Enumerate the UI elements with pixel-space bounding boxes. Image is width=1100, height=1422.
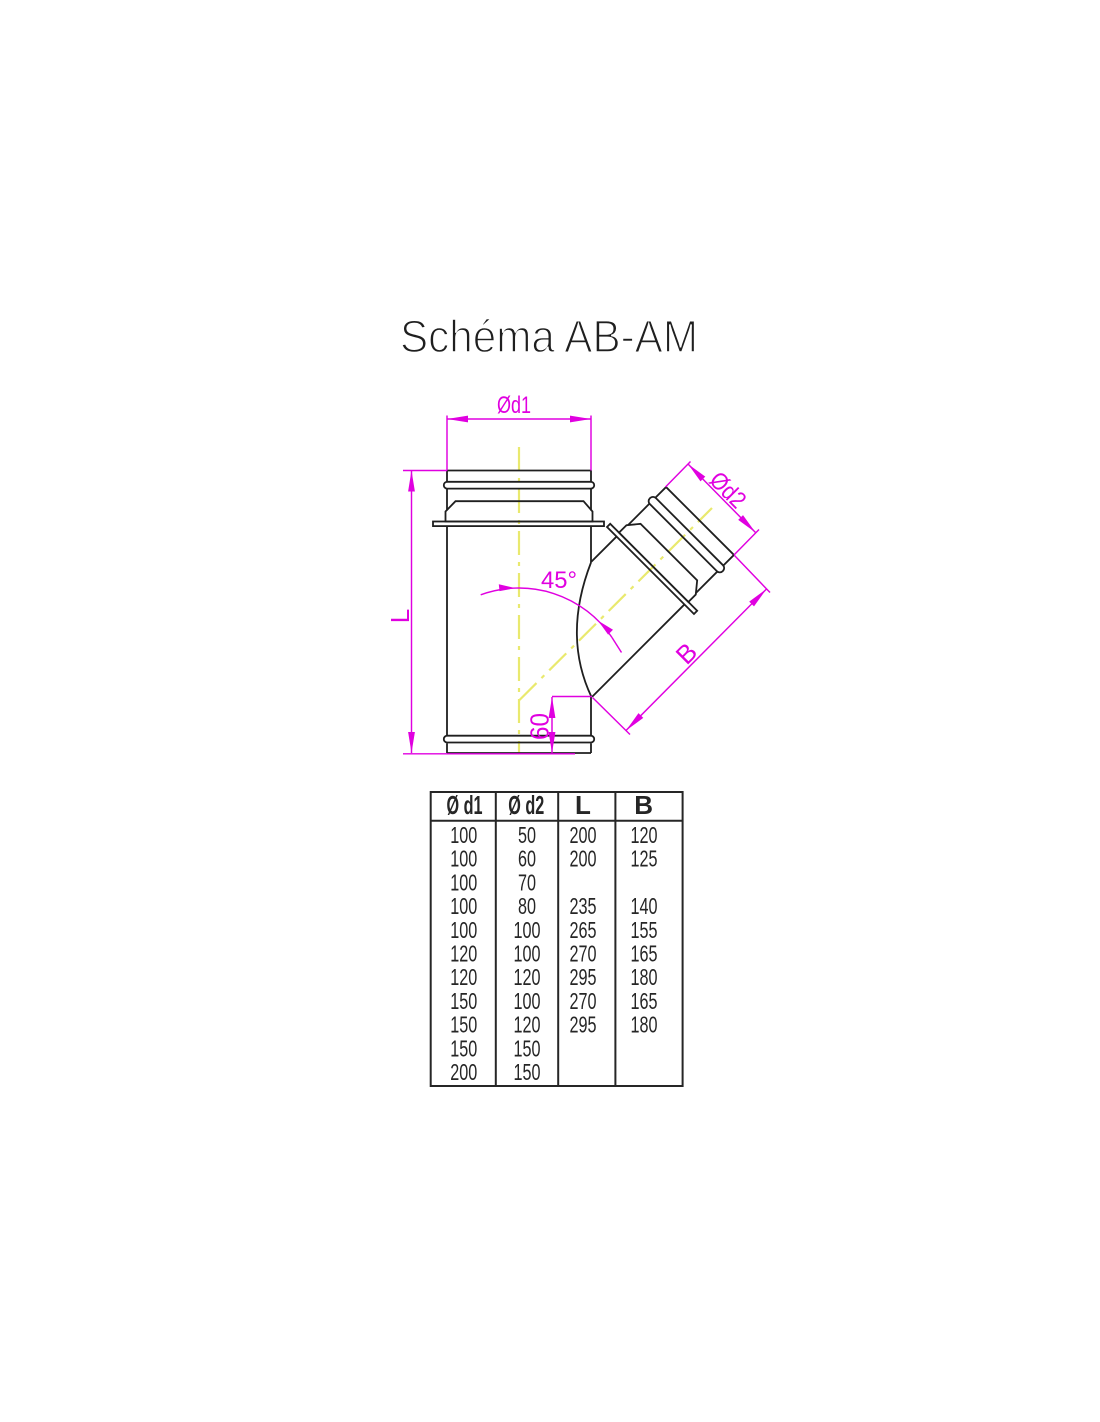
svg-text:165: 165 — [631, 941, 658, 967]
svg-text:150: 150 — [450, 1012, 477, 1038]
svg-text:200: 200 — [570, 846, 597, 872]
svg-text:150: 150 — [514, 1059, 541, 1085]
svg-text:Ød1: Ød1 — [497, 392, 531, 419]
svg-text:B: B — [634, 790, 653, 820]
svg-text:270: 270 — [570, 988, 597, 1014]
svg-text:100: 100 — [514, 988, 541, 1014]
svg-text:100: 100 — [450, 893, 477, 919]
svg-text:70: 70 — [518, 869, 536, 895]
svg-text:100: 100 — [450, 917, 477, 943]
svg-text:80: 80 — [518, 893, 536, 919]
svg-text:265: 265 — [570, 917, 597, 943]
svg-text:Schéma AB-AM: Schéma AB-AM — [400, 311, 698, 362]
svg-text:60: 60 — [518, 846, 536, 872]
svg-text:180: 180 — [631, 964, 658, 990]
svg-text:155: 155 — [631, 917, 658, 943]
svg-text:125: 125 — [631, 846, 658, 872]
svg-text:235: 235 — [570, 893, 597, 919]
svg-text:Ø d1: Ø d1 — [447, 790, 483, 820]
svg-text:100: 100 — [514, 941, 541, 967]
svg-text:100: 100 — [450, 869, 477, 895]
svg-text:200: 200 — [570, 822, 597, 848]
svg-text:295: 295 — [570, 964, 597, 990]
svg-text:150: 150 — [450, 988, 477, 1014]
svg-text:150: 150 — [514, 1035, 541, 1061]
svg-text:200: 200 — [450, 1059, 477, 1085]
svg-text:295: 295 — [570, 1012, 597, 1038]
svg-text:270: 270 — [570, 941, 597, 967]
svg-text:120: 120 — [450, 941, 477, 967]
svg-text:140: 140 — [631, 893, 658, 919]
svg-text:120: 120 — [514, 1012, 541, 1038]
svg-text:100: 100 — [514, 917, 541, 943]
svg-text:120: 120 — [631, 822, 658, 848]
svg-text:120: 120 — [514, 964, 541, 990]
svg-text:165: 165 — [631, 988, 658, 1014]
svg-text:180: 180 — [631, 1012, 658, 1038]
svg-text:150: 150 — [450, 1035, 477, 1061]
svg-text:100: 100 — [450, 846, 477, 872]
svg-text:45°: 45° — [541, 567, 577, 594]
svg-text:Ø d2: Ø d2 — [508, 790, 544, 820]
svg-text:60: 60 — [525, 713, 555, 740]
svg-text:50: 50 — [518, 822, 536, 848]
svg-text:100: 100 — [450, 822, 477, 848]
svg-text:L: L — [575, 790, 591, 820]
svg-text:L: L — [385, 609, 415, 623]
svg-text:120: 120 — [450, 964, 477, 990]
